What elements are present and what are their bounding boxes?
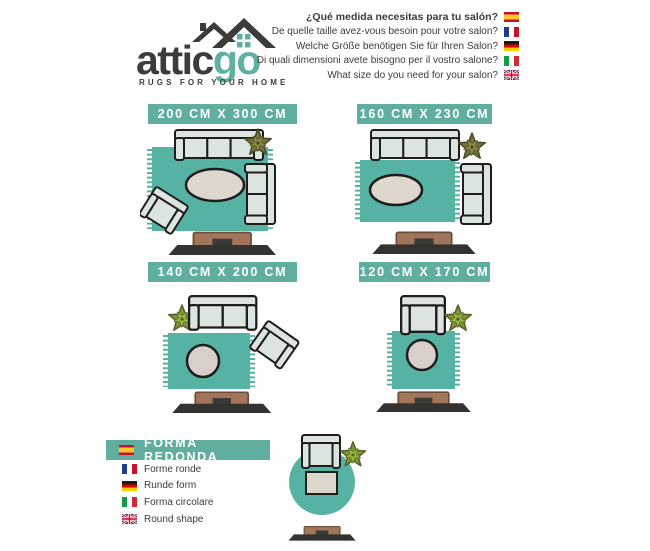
translation-text: Forma circolare [144, 497, 213, 508]
question-text: De quelle taille avez-vous besoin pour v… [272, 26, 498, 37]
question-row-fr: De quelle taille avez-vous besoin pour v… [159, 25, 519, 40]
tv-stand-icon [289, 527, 356, 541]
armchair-icon [302, 435, 340, 468]
tv-stand-icon [376, 392, 471, 412]
tv-stand-icon [169, 233, 277, 256]
italy-flag-icon [504, 56, 519, 66]
germany-flag-icon [122, 481, 137, 491]
coffee-table-icon [370, 175, 422, 205]
tv-stand-icon [372, 232, 475, 254]
plant-icon [445, 305, 472, 330]
size-banner-200x300: 200 CM X 300 CM [148, 104, 297, 124]
round-shape-banner: FORMA REDONDA [106, 440, 270, 460]
size-banner-140x200: 140 CM X 200 CM [148, 262, 297, 282]
size-cell-160x230: 160 CM X 230 CM [342, 104, 507, 257]
tv-stand-icon [172, 392, 271, 413]
round-table-icon [187, 345, 219, 377]
size-banner-120x170: 120 CM X 170 CM [359, 262, 490, 282]
italy-flag-icon [122, 497, 137, 507]
france-flag-icon [122, 464, 137, 474]
sofa-2seat-icon [245, 164, 275, 224]
armchair-icon [401, 296, 445, 334]
spain-flag-icon [119, 445, 134, 455]
sofa-2seat-icon [461, 164, 491, 224]
size-banner-160x230: 160 CM X 230 CM [357, 104, 492, 124]
spain-flag-icon [504, 12, 519, 22]
room-scene-200x300 [140, 127, 305, 257]
translation-text: Round shape [144, 514, 204, 525]
round-shape-translations: Forme ronde Runde form Forma circolare R… [122, 461, 213, 527]
translation-row-fr: Forme ronde [122, 461, 213, 478]
uk-flag-icon [122, 514, 137, 524]
room-scene-140x200 [140, 285, 305, 417]
coffee-table-icon [186, 169, 244, 201]
translation-text: Forme ronde [144, 464, 201, 475]
sofa-2seat-icon [189, 296, 256, 330]
plant-icon [459, 133, 486, 158]
size-cell-140x200: 140 CM X 200 CM [140, 262, 305, 417]
side-table-icon [306, 472, 337, 494]
round-shape-title: FORMA REDONDA [144, 436, 270, 464]
sofa-3seat-icon [371, 130, 459, 160]
question-text: Di quali dimensioni avete bisogno per il… [257, 55, 498, 66]
germany-flag-icon [504, 41, 519, 51]
question-row-en: What size do you need for your salon? [159, 68, 519, 83]
question-row-es: ¿Qué medida necesitas para tu salón? [159, 10, 519, 25]
translation-row-en: Round shape [122, 511, 213, 528]
room-scene-round [272, 428, 402, 548]
question-row-it: Di quali dimensioni avete bisogno per il… [159, 54, 519, 69]
uk-flag-icon [504, 70, 519, 80]
question-text: Welche Größe benötigen Sie für Ihren Sal… [296, 41, 498, 52]
size-cell-200x300: 200 CM X 300 CM [140, 104, 305, 257]
question-text: ¿Qué medida necesitas para tu salón? [306, 11, 498, 23]
question-text: What size do you need for your salon? [327, 70, 498, 81]
translation-text: Runde form [144, 480, 196, 491]
header-questions: ¿Qué medida necesitas para tu salón? De … [159, 10, 519, 83]
room-scene-120x170 [342, 285, 507, 417]
infographic-canvas: atticgo RUGS FOR YOUR HOME ¿Qué medida n… [0, 0, 650, 551]
size-cell-120x170: 120 CM X 170 CM [342, 262, 507, 417]
room-scene-160x230 [342, 127, 507, 257]
translation-row-de: Runde form [122, 478, 213, 495]
round-table-icon [407, 340, 437, 370]
translation-row-it: Forma circolare [122, 494, 213, 511]
france-flag-icon [504, 27, 519, 37]
question-row-de: Welche Größe benötigen Sie für Ihren Sal… [159, 39, 519, 54]
